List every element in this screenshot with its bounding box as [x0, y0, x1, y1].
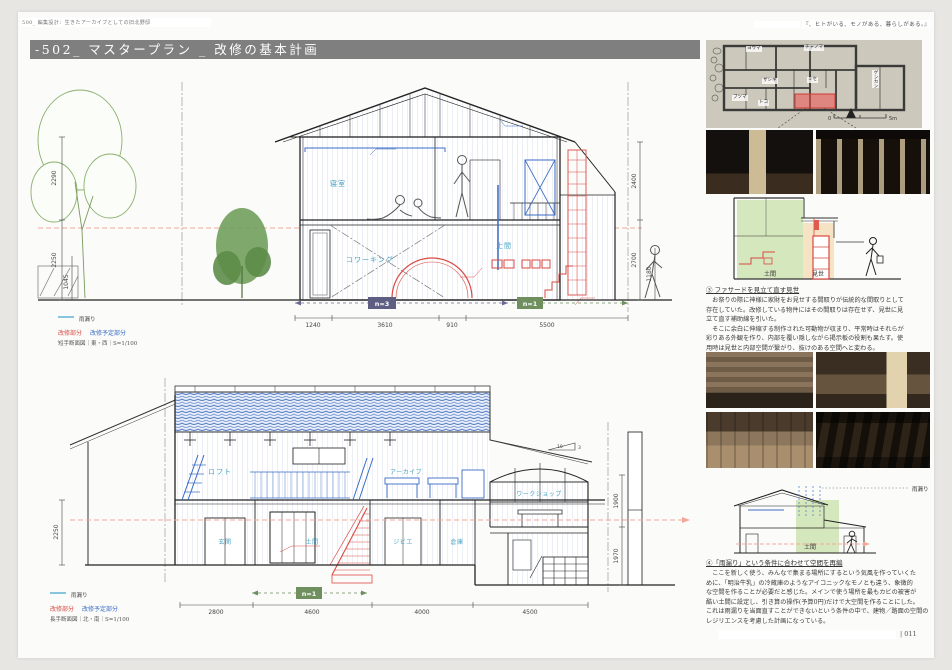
right-roof	[490, 432, 592, 464]
dim-4500: 4500	[522, 609, 537, 616]
rain-line-swatch	[58, 316, 74, 318]
doma-zone	[737, 200, 803, 279]
storage-label: 倉庫	[450, 538, 463, 546]
section-3-line: そこに余白に伸縮する制作された可動物が収まり、平常時はそれらが	[706, 325, 934, 335]
doma-zone-2	[796, 500, 839, 553]
bottom-section-drawing: 10 3 ロフト アーカイブ ワークショップ 玄関 土間 ジビエ 倉庫 n=1	[30, 350, 700, 640]
room-zashiki: ザシキ	[762, 78, 778, 84]
section-4-line: レジリエンスを考慮した計画になっている。	[706, 617, 934, 627]
facade-diagram: 土間 見世	[706, 196, 930, 286]
legend-renovated-label: 改修部分	[58, 330, 82, 337]
page-title: -502_ マスタープラン _ 改修の基本計画	[30, 40, 700, 59]
room-toko: トコ	[758, 100, 769, 106]
scale-bar	[834, 114, 886, 118]
header-right-text: 『、ヒトがいる、モノがある、暮らしがある。』	[802, 20, 931, 28]
document-canvas: 500_ 編集設計：生きたアーカイブとしての旧北野邸 『、ヒトがいる、モノがある…	[0, 0, 952, 670]
header-highlight-box	[754, 21, 800, 28]
section-3-line: 立て直す補助線を引いた。	[706, 315, 934, 325]
workshop-label: ワークショップ	[516, 491, 562, 498]
bedroom-label: 寝室	[330, 179, 346, 188]
top-section-drawing: 寝室 土間 コワーキング n=3 n=1 1240 3	[30, 60, 700, 345]
scale-zero: 0	[828, 116, 831, 122]
badge-row-2: n=1	[252, 587, 367, 599]
room-chanoma: チャノマ	[804, 45, 824, 51]
dim-2700: 2700	[631, 252, 638, 267]
drawing-top-caption: 短手断面図｜東・西｜S=1/100	[58, 339, 137, 349]
dim-1180: 1180	[646, 266, 653, 281]
section-4-line: な空間を作ることが必要だと感じた。メインで使う場所を最もカビの被害が	[706, 588, 934, 598]
legend-top: 雨漏り 改修部分改修予定部分 短手断面図｜東・西｜S=1/100	[58, 311, 137, 349]
legend-rain-label: 雨漏り	[79, 317, 96, 323]
dim-2250-b: 2250	[53, 524, 60, 539]
page: 500_ 編集設計：生きたアーカイブとしての旧北野邸 『、ヒトがいる、モノがある…	[18, 12, 934, 658]
rain-leak-diagram: 雨漏り 土間	[706, 470, 934, 560]
dim-1900: 1900	[613, 493, 620, 508]
section-3-text: ③ ファサードを見立て直す見世 お祭りの際に神様に家財をお見せする間取りが伝統的…	[706, 284, 934, 354]
photo-interior-2	[816, 130, 930, 194]
legend-planned-label-2: 改修予定部分	[82, 606, 118, 613]
badge-n1-top: n=1	[523, 300, 538, 308]
photo-demolition-4	[816, 412, 930, 468]
legend-renovated-label-2: 改修部分	[50, 606, 74, 613]
dim-1970: 1970	[613, 548, 620, 563]
section-3-line: お祭りの際に神様に家財をお見せする間取りが伝統的な間取りとして	[706, 296, 934, 306]
section-4-line: 酷い土間に設定し、引き算の操作(予算0円)だけで大空間を作ることにした。	[706, 598, 934, 608]
legend-planned-label: 改修予定部分	[90, 330, 126, 337]
blue-tile-roof	[175, 386, 490, 432]
legend-bottom: 雨漏り 改修部分改修予定部分 長手断面図｜北・南｜S=1/100	[50, 587, 129, 625]
photo-interior-1	[706, 130, 813, 194]
section-4-line: ここを新しく使う、みんなで集まる場所にするという気風を作っていくた	[706, 569, 934, 579]
photo-grid	[706, 352, 930, 468]
coworking-label: コワーキング	[346, 255, 394, 264]
room-genkan: ゲンカン	[872, 70, 879, 88]
dim-2800: 2800	[208, 609, 223, 616]
dim-2250: 2250	[51, 252, 58, 267]
neighbor-building	[70, 398, 180, 565]
garden-stones	[710, 48, 723, 101]
dim-4000: 4000	[414, 609, 429, 616]
page-number: | 011	[900, 630, 917, 638]
scale-end: 5m	[889, 116, 897, 122]
dim-1045: 1045	[63, 274, 70, 289]
dim-2400: 2400	[631, 173, 638, 188]
photo-demolition-1	[706, 352, 813, 408]
photo-strip	[706, 130, 930, 194]
dim-910: 910	[446, 322, 458, 329]
slope-rise: 3	[578, 445, 581, 451]
legend-rain-label-2: 雨漏り	[71, 593, 88, 599]
photo-demolition-2	[816, 352, 930, 408]
rain-line-swatch-2	[50, 592, 66, 594]
highlighted-mise-room	[795, 94, 835, 108]
room-butsuma: ブツマ	[732, 95, 748, 101]
small-tree	[213, 208, 271, 298]
pink-arrowhead	[682, 517, 690, 523]
slope-run: 10	[557, 444, 563, 450]
badge-n1-bottom: n=1	[302, 590, 317, 598]
loft-label: ロフト	[208, 468, 232, 476]
diagram1-doma-label: 土間	[764, 270, 776, 278]
section-4-text: ④「雨漏り」という条件に合わせて空間を再編 ここを新しく使う、みんなで集まる場所…	[706, 557, 934, 627]
room-youma: ヨウマ	[746, 46, 762, 52]
photo-demolition-3	[706, 412, 813, 468]
roof-truss	[275, 88, 575, 142]
diagram1-mise-label: 見世	[812, 270, 824, 278]
diagram2-doma-label: 土間	[804, 543, 816, 551]
right-gate-wall	[628, 432, 642, 585]
doma-label-2: 土間	[305, 538, 318, 546]
archive-label: アーカイブ	[390, 468, 422, 476]
gibier-label: ジビエ	[393, 538, 413, 546]
header-left: 500_ 編集設計：生きたアーカイブとしての旧北野邸	[20, 18, 211, 27]
footer-box	[718, 630, 896, 639]
dim-4600: 4600	[304, 609, 319, 616]
floor-plan-drawing: 0 5m	[706, 40, 922, 128]
section-3-heading: ③ ファサードを見立て直す見世	[706, 284, 934, 294]
dim-2290: 2290	[51, 170, 58, 185]
section-4-line: これは雨漏りを当面直すことができないという条件の中で、建物／路面の空間の	[706, 607, 934, 617]
dim-5500: 5500	[539, 322, 554, 329]
badge-n3: n=3	[375, 300, 390, 308]
large-tree	[31, 90, 136, 298]
doma-label: 土間	[496, 241, 512, 250]
room-mise: ミセ	[807, 77, 818, 83]
pink-arrowhead-2	[863, 542, 870, 547]
dim-1240: 1240	[305, 322, 320, 329]
rain-label: 雨漏り	[912, 485, 929, 493]
genkan-label: 玄関	[218, 538, 231, 546]
dim-3610: 3610	[377, 322, 392, 329]
section-4-heading: ④「雨漏り」という条件に合わせて空間を再編	[706, 557, 934, 567]
section-3-line: 彩りある外観を作り、内部を覆い隠しながら掲示板の役割も果たす。使	[706, 334, 934, 344]
drawing-bottom-caption: 長手断面図｜北・南｜S=1/100	[50, 615, 129, 625]
figure-2	[847, 531, 857, 553]
header-right: 『、ヒトがいる、モノがある、暮らしがある。』	[754, 20, 931, 28]
section-3-line: 存在していた。改修している物件にはその間取りは存在せず、見世に見	[706, 306, 934, 316]
section-4-line: めに、「明治牛乳」の冷蔵庫のようなアイコニックなモノとも違う、象徴的	[706, 579, 934, 589]
floor-plan: 0 5m ヨウマ チャノマ ザシキ ミセ ゲンカン ブツマ トコ	[706, 40, 922, 128]
viewer-figure	[866, 238, 883, 277]
